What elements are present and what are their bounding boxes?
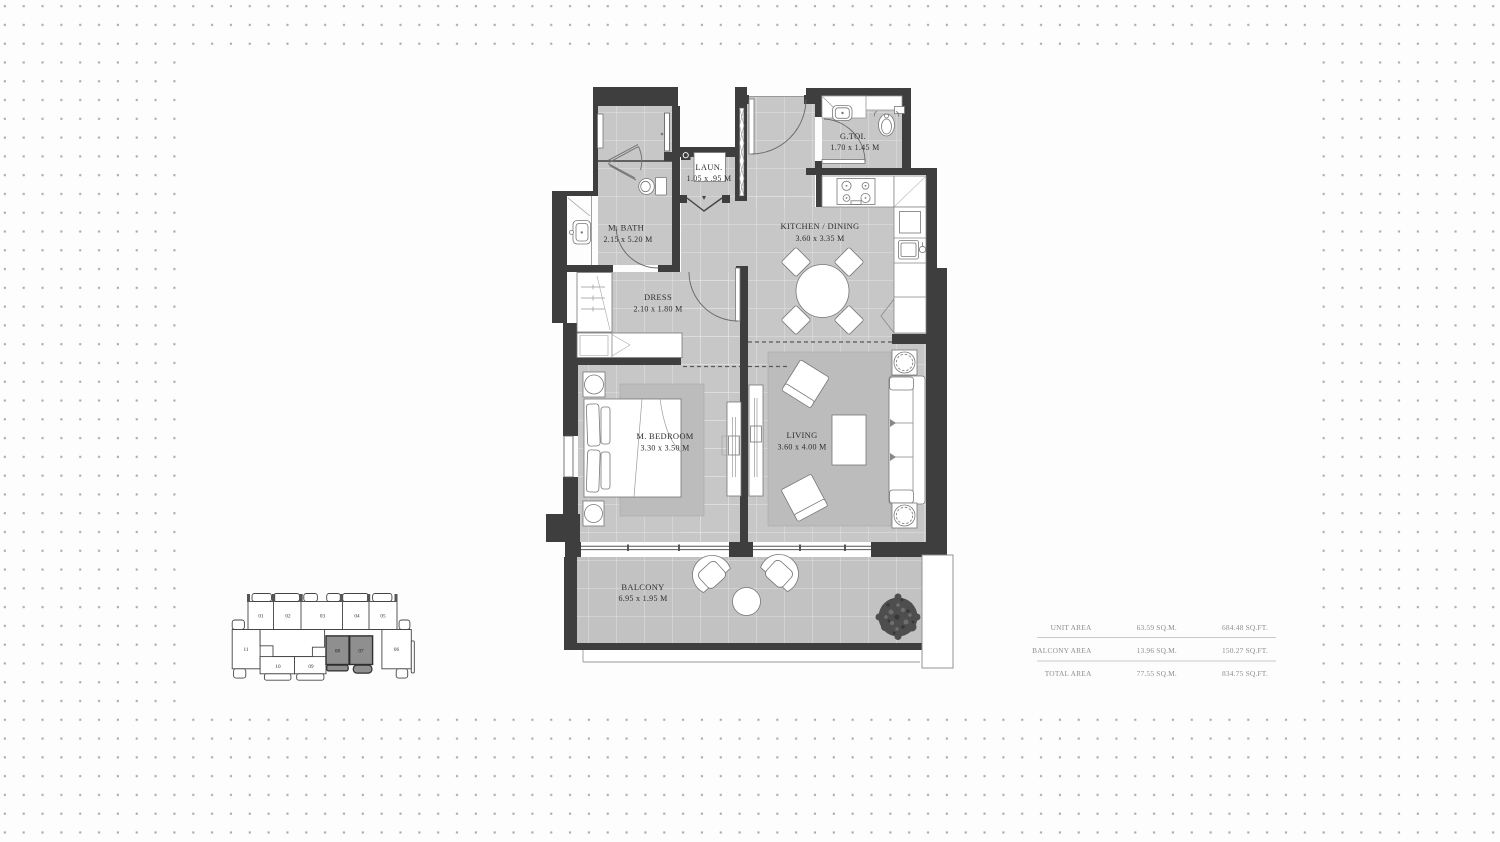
svg-text:07: 07 xyxy=(358,649,364,655)
svg-text:01: 01 xyxy=(258,614,264,620)
svg-text:BALCONY AREA: BALCONY AREA xyxy=(1032,646,1092,655)
svg-text:04: 04 xyxy=(354,614,360,620)
svg-text:LIVING: LIVING xyxy=(786,430,817,440)
svg-text:M. BATH: M. BATH xyxy=(608,223,644,233)
svg-text:150.27 SQ.FT.: 150.27 SQ.FT. xyxy=(1222,646,1268,655)
svg-text:11: 11 xyxy=(244,647,249,653)
svg-text:6.95 x 1.95 M: 6.95 x 1.95 M xyxy=(618,594,667,603)
svg-text:09: 09 xyxy=(308,664,314,670)
svg-text:03: 03 xyxy=(320,614,326,620)
svg-text:13.96 SQ.M.: 13.96 SQ.M. xyxy=(1137,646,1177,655)
svg-text:1.05 x .95 M: 1.05 x .95 M xyxy=(687,174,732,183)
svg-text:DRESS: DRESS xyxy=(644,292,672,302)
svg-text:LAUN.: LAUN. xyxy=(695,162,722,172)
svg-text:TOTAL AREA: TOTAL AREA xyxy=(1045,669,1092,678)
svg-text:63.59 SQ.M.: 63.59 SQ.M. xyxy=(1137,623,1177,632)
svg-text:77.55 SQ.M.: 77.55 SQ.M. xyxy=(1137,669,1177,678)
svg-text:05: 05 xyxy=(380,614,386,620)
svg-text:BALCONY: BALCONY xyxy=(621,582,664,592)
svg-text:3.60 x 4.00 M: 3.60 x 4.00 M xyxy=(777,443,826,452)
svg-text:3.60 x 3.35 M: 3.60 x 3.35 M xyxy=(795,234,844,243)
svg-text:06: 06 xyxy=(394,647,400,653)
svg-text:2.15 x 5.20 M: 2.15 x 5.20 M xyxy=(603,235,652,244)
svg-text:KITCHEN / DINING: KITCHEN / DINING xyxy=(781,221,860,231)
svg-text:UNIT AREA: UNIT AREA xyxy=(1051,623,1092,632)
svg-text:684.48 SQ.FT.: 684.48 SQ.FT. xyxy=(1222,623,1268,632)
svg-text:10: 10 xyxy=(275,664,281,670)
svg-text:02: 02 xyxy=(285,614,291,620)
svg-text:08: 08 xyxy=(335,649,341,655)
svg-text:G.TOI.: G.TOI. xyxy=(840,131,866,141)
svg-text:2.10 x 1.80 M: 2.10 x 1.80 M xyxy=(633,305,682,314)
svg-text:1.70 x 1.45 M: 1.70 x 1.45 M xyxy=(830,143,879,152)
svg-text:3.30 x 3.50 M: 3.30 x 3.50 M xyxy=(640,444,689,453)
svg-text:834.75 SQ.FT.: 834.75 SQ.FT. xyxy=(1222,669,1268,678)
svg-text:M. BEDROOM: M. BEDROOM xyxy=(636,431,693,441)
